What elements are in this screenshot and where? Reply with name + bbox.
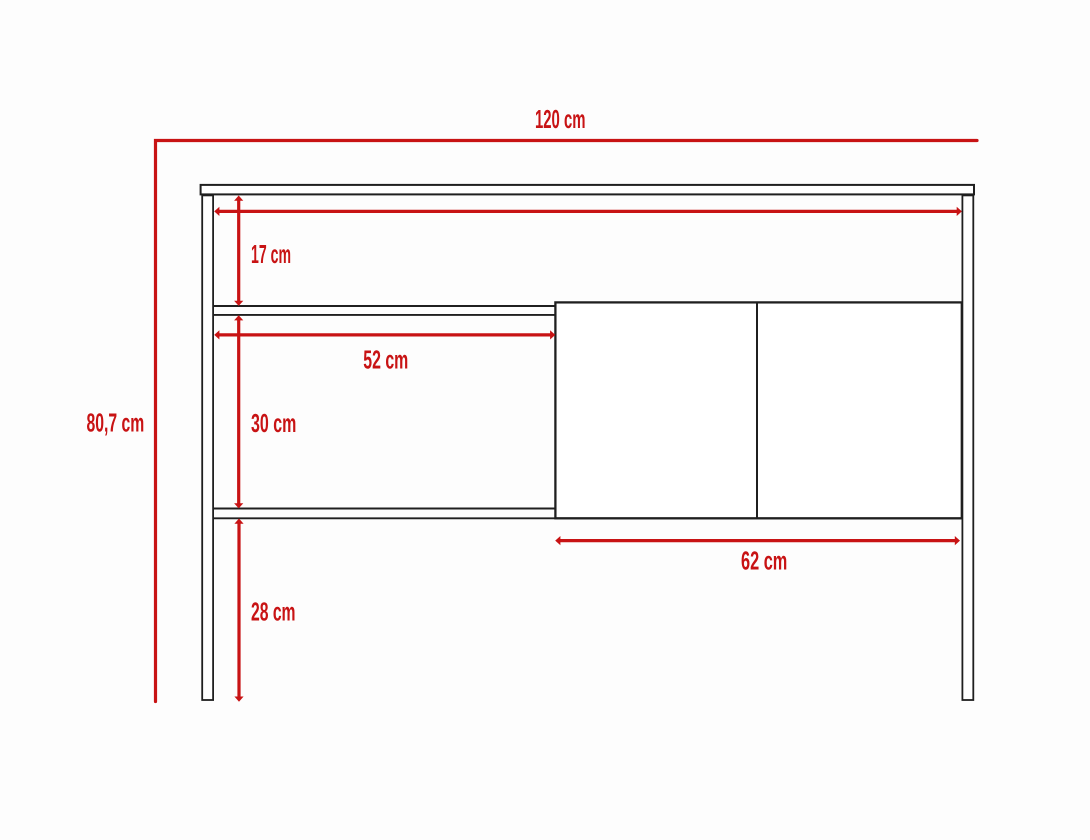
svg-text:120 cm: 120 cm [535, 104, 586, 134]
svg-text:80,7 cm: 80,7 cm [87, 408, 145, 438]
svg-text:28 cm: 28 cm [251, 597, 296, 627]
svg-text:30 cm: 30 cm [251, 408, 296, 438]
svg-text:52 cm: 52 cm [363, 344, 408, 374]
svg-text:62 cm: 62 cm [741, 546, 787, 576]
svg-text:17 cm: 17 cm [251, 239, 291, 269]
